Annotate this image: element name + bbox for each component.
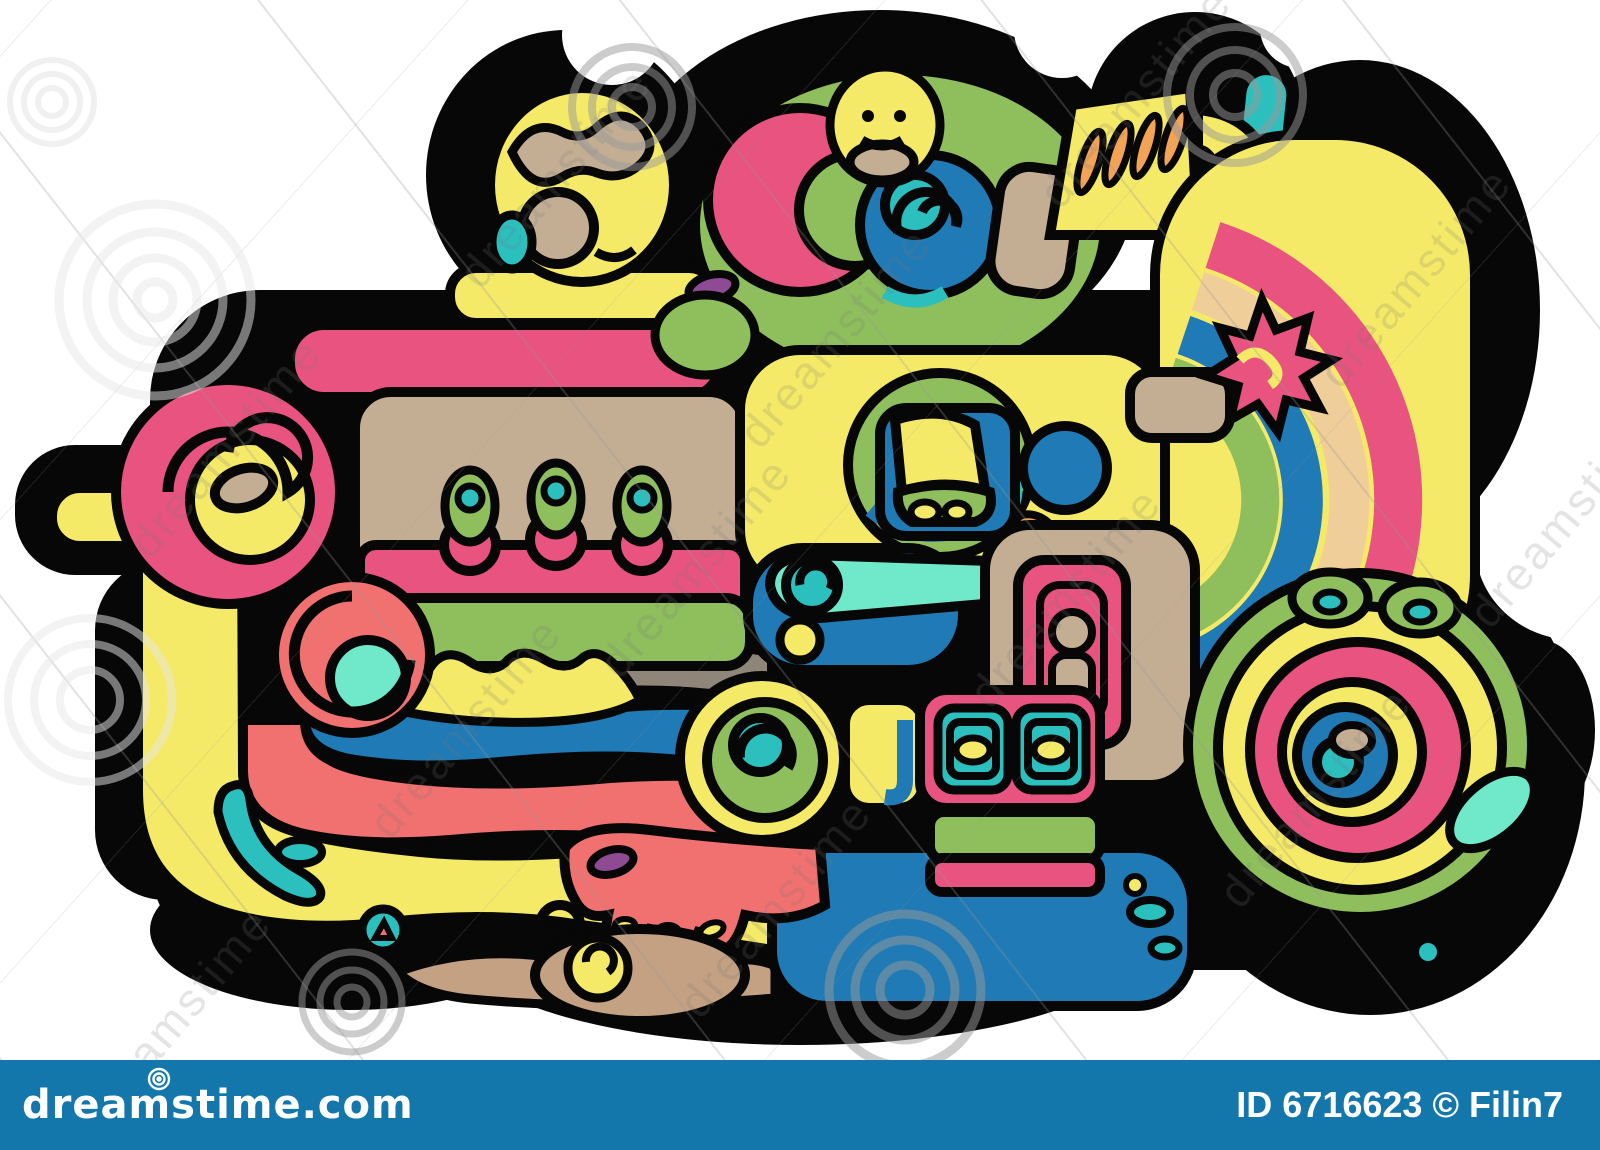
ornament-illustration	[0, 0, 1600, 1060]
skull-motif-left	[490, 88, 674, 282]
foot-glyph	[880, 408, 1015, 536]
green-swirl-motif	[680, 676, 844, 840]
skull-motif-top	[830, 67, 940, 183]
blue-j-glyph	[845, 700, 923, 808]
brand-text: dreamstime.com	[22, 1082, 414, 1128]
brand-spiral-icon	[146, 1066, 172, 1092]
stock-image-page: dreamstime dreamstime dreamstime dreamst…	[0, 0, 1600, 1150]
image-credit: ID 6716623 © Filin7	[1236, 1084, 1563, 1126]
credit-text: ID 6716623 © Filin7	[1236, 1084, 1563, 1125]
salmon-curl-motif	[274, 577, 430, 733]
tan-mass-crown-motif	[355, 392, 745, 623]
footer-bar: dreamstime.com ID 6716623 © Filin7	[0, 1060, 1600, 1150]
brand-logo[interactable]: dreamstime.com	[22, 1082, 414, 1128]
